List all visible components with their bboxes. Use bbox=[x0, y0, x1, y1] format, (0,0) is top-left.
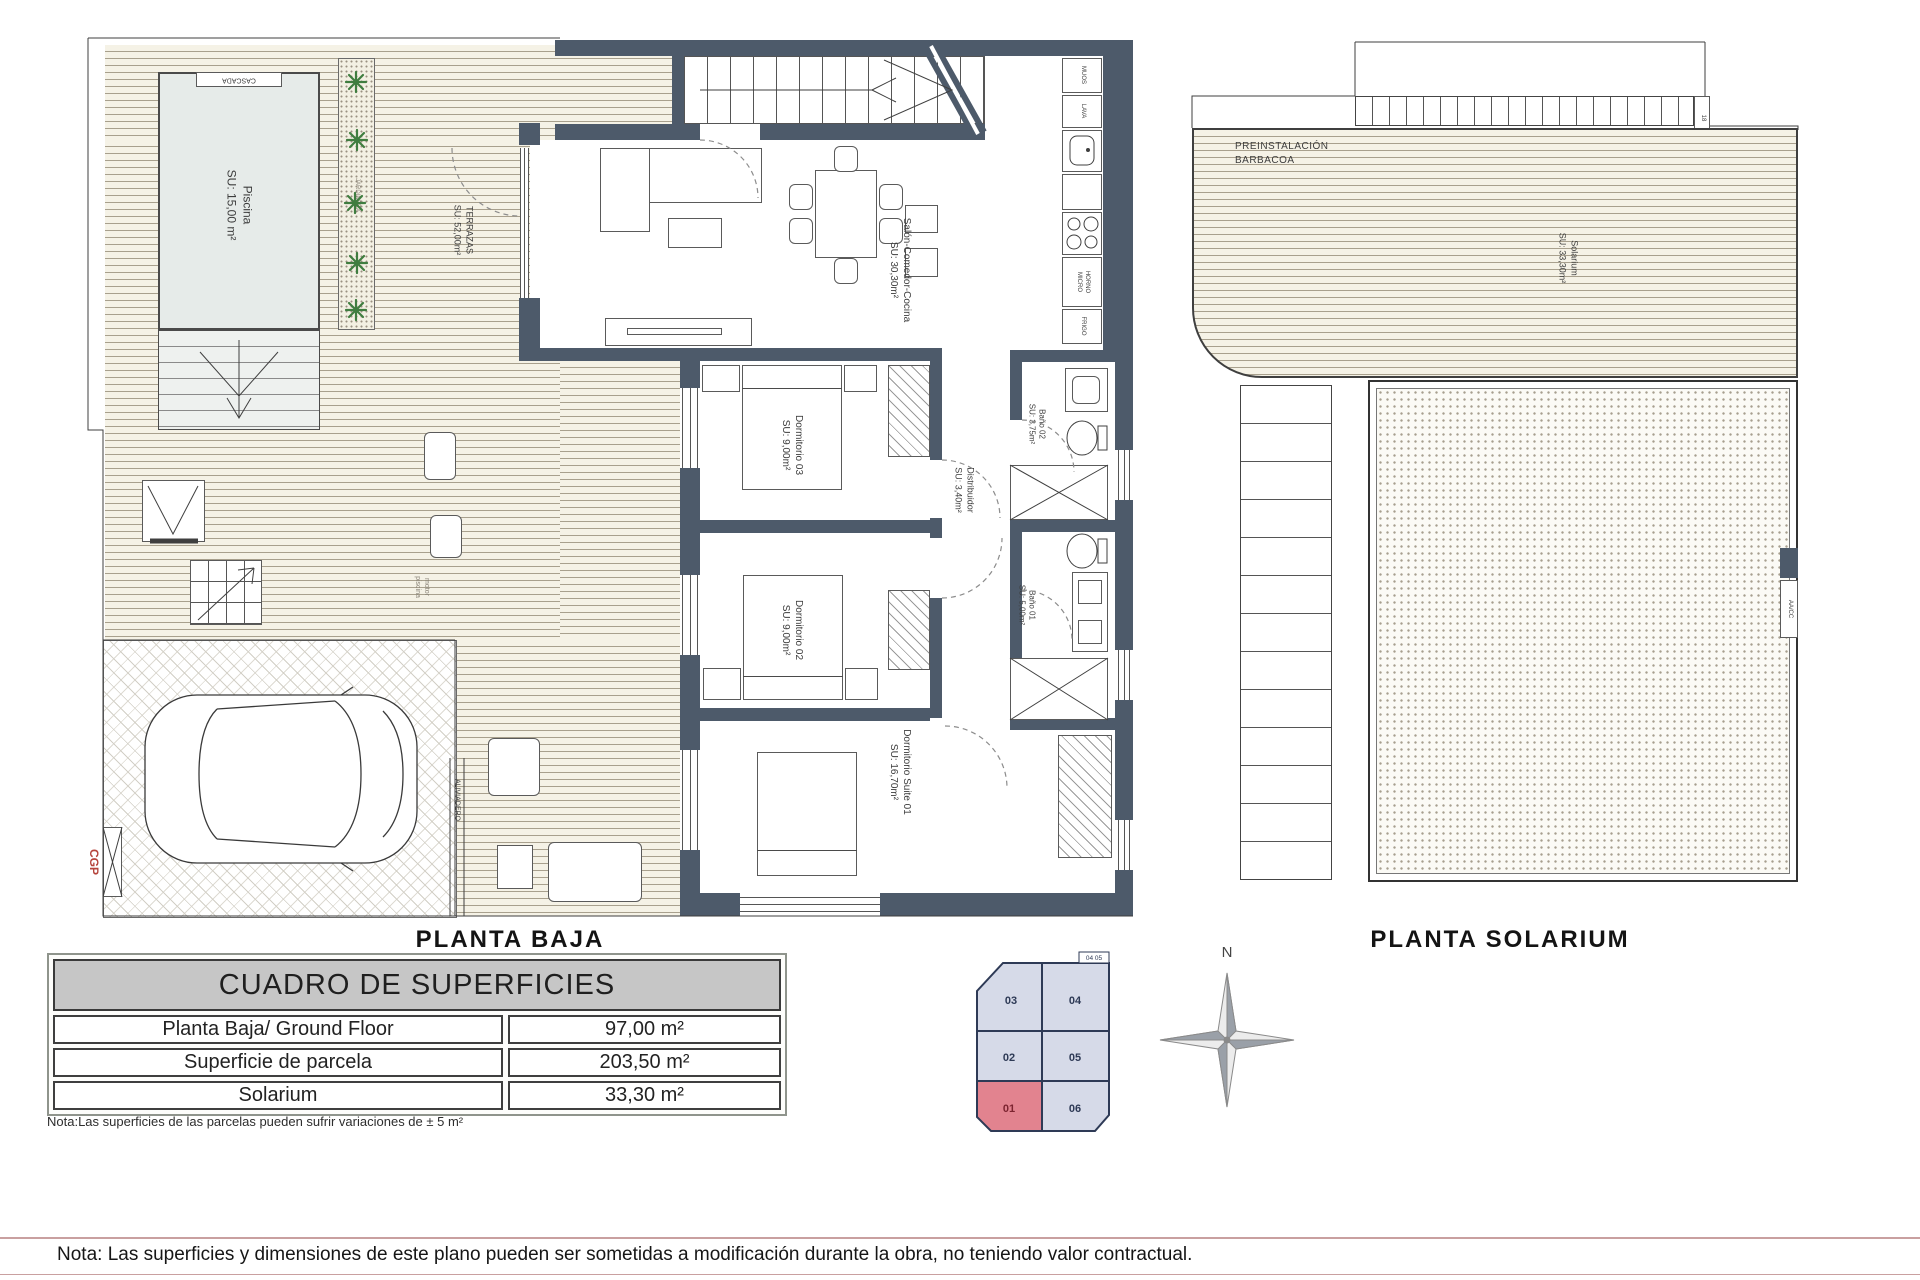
parcel-03-number: 03 bbox=[1005, 995, 1017, 1007]
row-label: Superficie de parcela bbox=[53, 1048, 503, 1077]
plot-key-map: 03 04 02 05 01 06 04 05 bbox=[973, 951, 1113, 1133]
footer-note: Nota: Las superficies y dimensiones de e… bbox=[57, 1244, 1192, 1266]
aacc-unit bbox=[1780, 548, 1798, 578]
barbacoa-label: PREINSTALACIÓN BARBACOA bbox=[1235, 140, 1329, 168]
solarium-stair-strip bbox=[1355, 96, 1694, 126]
aacc-label: AA/CC bbox=[1785, 600, 1793, 618]
compass-north-letter: N bbox=[1212, 944, 1242, 961]
table-row: Solarium 33,30 m² bbox=[53, 1081, 781, 1110]
plot-tiny-label: 04 05 bbox=[1086, 955, 1103, 962]
compass-rose bbox=[1152, 965, 1302, 1115]
row-label: Solarium bbox=[53, 1081, 503, 1110]
solarium-name: Solarium bbox=[1568, 233, 1580, 284]
barbacoa-line2: BARBACOA bbox=[1235, 154, 1329, 168]
parcel-02-number: 02 bbox=[1003, 1052, 1015, 1064]
parcel-05-number: 05 bbox=[1069, 1052, 1081, 1064]
solarium-title: PLANTA SOLARIUM bbox=[1320, 926, 1680, 954]
parcel-04-number: 04 bbox=[1069, 995, 1082, 1007]
parcel-01-number: 01 bbox=[1003, 1103, 1015, 1115]
ground-floor-title: PLANTA BAJA bbox=[380, 926, 640, 954]
row-value: 33,30 m² bbox=[508, 1081, 781, 1110]
solarium-label: Solarium SU: 33,30m² bbox=[1556, 233, 1579, 284]
row-value: 203,50 m² bbox=[508, 1048, 781, 1077]
surfaces-table-title: CUADRO DE SUPERFICIES bbox=[53, 959, 781, 1011]
footer-rule-top bbox=[0, 1237, 1920, 1239]
solarium-area: SU: 33,30m² bbox=[1556, 233, 1568, 284]
parcel-06-number: 06 bbox=[1069, 1103, 1081, 1115]
barbacoa-line1: PREINSTALACIÓN bbox=[1235, 140, 1329, 154]
row-value: 97,00 m² bbox=[508, 1015, 781, 1044]
solarium-pergola bbox=[1240, 385, 1332, 880]
floor-plan-sheet: CASCADA Piscina SU: 15,00 m² JARDINERA T… bbox=[0, 0, 1920, 1280]
surfaces-table: CUADRO DE SUPERFICIES Planta Baja/ Groun… bbox=[47, 953, 787, 1116]
surfaces-table-note: Nota:Las superficies de las parcelas pue… bbox=[47, 1114, 463, 1129]
solarium-roof-gravel bbox=[1376, 388, 1790, 874]
table-row: Planta Baja/ Ground Floor 97,00 m² bbox=[53, 1015, 781, 1044]
row-label: Planta Baja/ Ground Floor bbox=[53, 1015, 503, 1044]
table-row: Superficie de parcela 203,50 m² bbox=[53, 1048, 781, 1077]
solarium-step-label: 18 bbox=[1698, 115, 1706, 122]
footer-rule-bottom bbox=[0, 1274, 1920, 1275]
